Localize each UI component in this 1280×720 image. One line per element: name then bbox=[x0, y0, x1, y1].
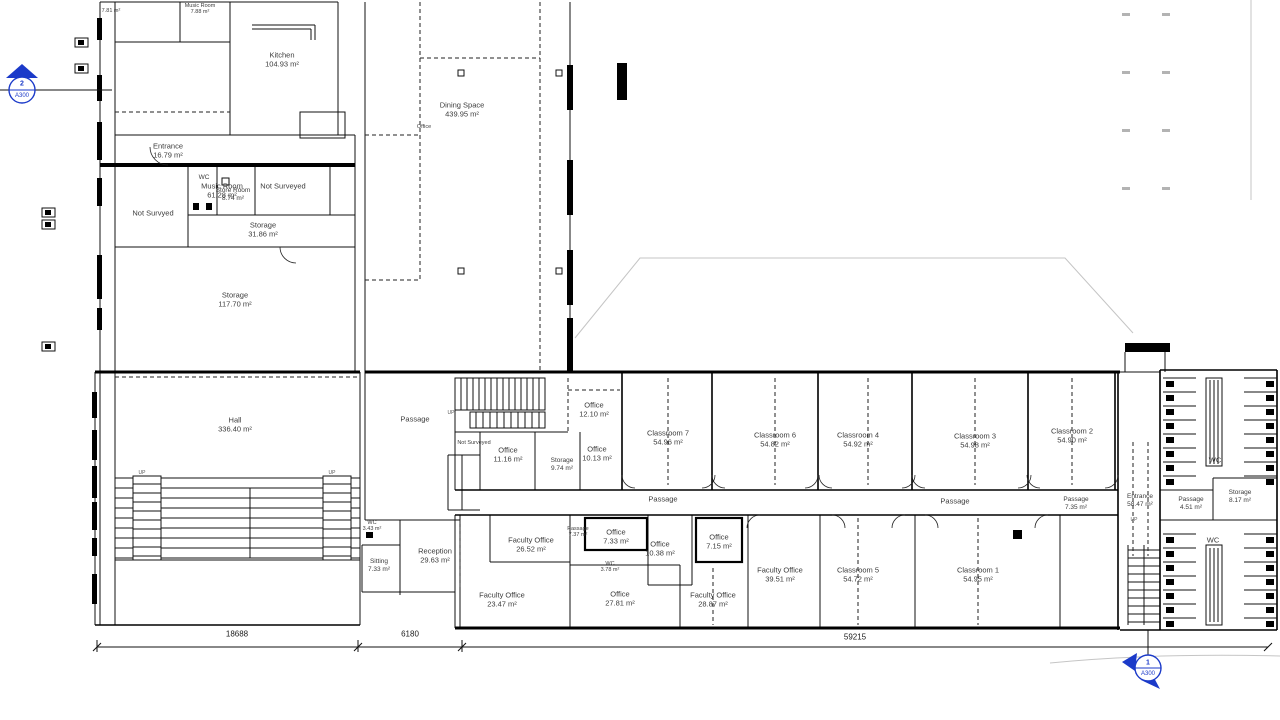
walls-corridor bbox=[95, 370, 1277, 630]
section-marker-left-sheet[interactable]: A300 bbox=[15, 93, 29, 99]
room-label-wc-west: WC bbox=[199, 174, 210, 182]
wall-fill-segments bbox=[45, 18, 1170, 604]
door-arcs bbox=[150, 147, 1118, 528]
room-label-entrance-west: Entrance16.79 m² bbox=[153, 142, 183, 161]
room-label-office-1210: Office12.10 m² bbox=[579, 401, 609, 420]
room-label-781: 7.81 m² bbox=[102, 8, 121, 14]
room-label-passage-735: Passage7.35 m² bbox=[1063, 496, 1088, 512]
room-label-storage-974: Storage9.74 m² bbox=[551, 457, 574, 473]
room-label-hall: Hall336.40 m² bbox=[218, 416, 252, 435]
section-marker-bottom-sheet[interactable]: A300 bbox=[1141, 671, 1155, 677]
dimension-18688: 18688 bbox=[224, 630, 250, 639]
room-label-office-1038: Office10.38 m² bbox=[645, 540, 675, 559]
section-marker-bottom[interactable] bbox=[1122, 630, 1161, 689]
room-label-classroom-6: Classroom 654.82 m² bbox=[754, 431, 796, 450]
stairs-center bbox=[455, 378, 545, 428]
room-label-office-top-small: Office bbox=[417, 124, 431, 130]
dashed-lines bbox=[115, 2, 1148, 625]
room-label-classroom-3: Classroom 354.98 m² bbox=[954, 432, 996, 451]
room-label-faculty-3951: Faculty Office39.51 m² bbox=[757, 566, 803, 585]
room-label-wc-343: WC3.43 m² bbox=[363, 520, 382, 532]
room-label-dining-space: Dining Space439.95 m² bbox=[440, 101, 485, 120]
up-label-east-stair: UP bbox=[1131, 517, 1138, 523]
room-label-entrance-east: Entrance58.47 m² bbox=[1127, 493, 1153, 509]
survey-marks bbox=[1122, 13, 1170, 190]
up-label-center-stair: UP bbox=[448, 410, 455, 416]
room-label-storage-small: Storage31.86 m² bbox=[248, 221, 278, 240]
room-label-office-1116: Office11.16 m² bbox=[493, 446, 522, 465]
room-label-classroom-2: Classroom 254.90 m² bbox=[1051, 427, 1093, 446]
room-label-faculty-2887: Faculty Office28.87 m² bbox=[690, 591, 736, 610]
up-label-hall-east: UP bbox=[329, 470, 336, 476]
room-label-passage-hall: Passage bbox=[400, 414, 429, 423]
room-label-classroom-1: Classroom 154.95 m² bbox=[957, 566, 999, 585]
site-boundary-lines bbox=[575, 0, 1280, 663]
section-marker-bottom-number[interactable]: 1 bbox=[1146, 660, 1150, 667]
room-label-wc-378: WC3.78 m² bbox=[601, 561, 620, 573]
room-label-reception: Reception29.63 m² bbox=[418, 547, 452, 566]
room-label-not-surveyed-small: Not Surveyed bbox=[457, 440, 490, 446]
room-label-not-survyed-west: Not Survyed bbox=[132, 208, 173, 217]
dimension-6180: 6180 bbox=[399, 630, 421, 639]
up-label-hall-west: UP bbox=[139, 470, 146, 476]
dimension-59215: 59215 bbox=[842, 633, 868, 642]
hall-bleachers bbox=[115, 476, 360, 560]
room-label-faculty-2347: Faculty Office23.47 m² bbox=[479, 591, 525, 610]
plan-canvas: Music Room7.88 m² 7.81 m² Music Room61.2… bbox=[0, 0, 1280, 720]
room-label-passage-corridor-east: Passage bbox=[940, 496, 969, 505]
room-label-not-surveyed-east: Not Surveyed bbox=[260, 181, 305, 190]
room-label-office-2781: Office27.81 m² bbox=[605, 590, 635, 609]
room-label-passage-737: Passage7.37 m² bbox=[567, 526, 588, 538]
room-label-office-733: Office7.33 m² bbox=[603, 528, 628, 547]
room-label-office-1013: Office10.13 m² bbox=[582, 445, 612, 464]
room-label-music-room-upper: Music Room7.88 m² bbox=[185, 3, 216, 15]
wc-north-stalls bbox=[1163, 378, 1277, 485]
room-label-classroom-7: Classroom 754.96 m² bbox=[647, 429, 689, 448]
section-marker-left-number[interactable]: 2 bbox=[20, 81, 24, 88]
room-label-storage-large: Storage117.70 m² bbox=[218, 291, 251, 310]
room-label-faculty-2652: Faculty Office26.52 m² bbox=[508, 536, 554, 555]
room-label-classroom-5: Classroom 554.72 m² bbox=[837, 566, 879, 585]
room-label-kitchen: Kitchen104.93 m² bbox=[265, 51, 299, 70]
room-label-office-715: Office7.15 m² bbox=[706, 533, 731, 552]
room-label-passage-451: Passage4.51 m² bbox=[1178, 496, 1203, 512]
room-label-store-room: Store Room8.74 m² bbox=[216, 187, 251, 203]
walls-thin bbox=[42, 2, 1277, 628]
room-label-wc-north: WC bbox=[1209, 455, 1222, 464]
room-label-classroom-4: Classroom 454.92 m² bbox=[837, 431, 879, 450]
room-label-wc-south: WC bbox=[1207, 535, 1220, 544]
dimension-lines bbox=[93, 640, 1272, 652]
room-label-storage-817: Storage8.17 m² bbox=[1229, 489, 1252, 505]
wc-south-stalls bbox=[1163, 534, 1277, 627]
room-label-passage-corridor-west: Passage bbox=[648, 494, 677, 503]
floor-plan-drawing bbox=[0, 0, 1280, 720]
room-label-sitting: Sitting7.33 m² bbox=[368, 558, 390, 574]
